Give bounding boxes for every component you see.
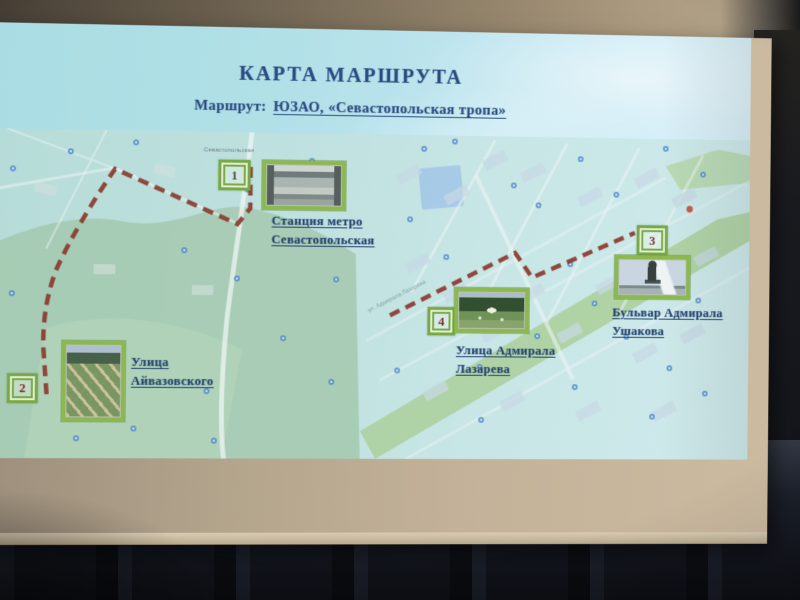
poi-dot-center	[651, 416, 653, 418]
presentation-slide: КАРТА МАРШРУТА Маршрут:ЮЗАО, «Севастопол…	[0, 22, 751, 460]
slide-subtitle: Маршрут:ЮЗАО, «Севастопольская тропа»	[0, 94, 704, 123]
park-patch-topright	[665, 149, 750, 191]
point-1-label: Станция метро Севастопольская	[271, 212, 375, 250]
poi-dot-center	[574, 386, 576, 388]
point-3-label-line2: Ушакова	[612, 322, 723, 341]
point-3-label-line1: Бульвар Адмирала	[612, 304, 723, 323]
point-2-label: Улица Айвазовского	[131, 353, 214, 391]
route-marker-4: 4	[427, 307, 455, 336]
point-3-label: Бульвар Адмирала Ушакова	[612, 304, 723, 341]
point-4-label-line2: Лазарева	[456, 360, 556, 379]
poi-dot-center	[704, 393, 706, 395]
poi-dot-center	[236, 277, 238, 279]
marker-1-number: 1	[231, 167, 238, 183]
poi-dot-center	[593, 302, 595, 304]
poi-dot-center	[697, 299, 699, 301]
subtitle-label: Маршрут:	[194, 98, 266, 115]
poi-dot-center	[536, 335, 538, 337]
subtitle-route-name: ЮЗАО, «Севастопольская тропа»	[273, 99, 506, 119]
marker-2-number: 2	[19, 380, 26, 396]
photo-frame-1	[262, 160, 346, 210]
marker-3-number: 3	[649, 233, 655, 249]
metro-icon	[686, 206, 692, 213]
map-street-label-sevastopolskaya: Севастопольская	[204, 147, 254, 154]
poi-dot-center	[330, 381, 332, 383]
point-4-label-line1: Улица Адмирала	[456, 341, 556, 360]
pond-block	[418, 165, 464, 210]
point-4-label: Улица Адмирала Лазарева	[456, 341, 556, 378]
auditorium-photo: КАРТА МАРШРУТА Маршрут:ЮЗАО, «Севастопол…	[0, 0, 800, 600]
poi-dot-center	[396, 369, 398, 371]
poi-dot-center	[75, 437, 77, 439]
marker-4-number: 4	[438, 313, 444, 329]
point-1-label-line1: Станция метро	[272, 212, 375, 232]
poi-dot-center	[668, 367, 670, 369]
point-1-label-line2: Севастопольская	[271, 230, 374, 250]
poi-dot-center	[213, 440, 215, 442]
screen-bottom-rail	[0, 532, 767, 545]
ayvazovsky-park-photo	[66, 346, 120, 417]
slide-title: КАРТА МАРШРУТА	[0, 56, 704, 94]
poi-dot-center	[11, 292, 13, 294]
route-marker-3: 3	[637, 225, 668, 255]
point-2-label-line1: Улица	[131, 353, 214, 372]
photo-frame-3	[614, 255, 690, 299]
lazareva-park-photo	[459, 292, 524, 328]
poi-dot-center	[282, 337, 284, 339]
route-map: Севастопольская ул. Адмирала Лазарева 1 …	[0, 128, 750, 460]
ushakov-monument-photo	[619, 260, 685, 295]
photo-frame-4	[454, 288, 529, 334]
poi-dot-center	[132, 427, 134, 429]
route-marker-1: 1	[218, 160, 251, 191]
metro-station-photo	[267, 165, 341, 205]
route-marker-2: 2	[7, 373, 38, 403]
photo-frame-2	[61, 341, 125, 422]
point-2-label-line2: Айвазовского	[131, 372, 214, 391]
poi-dot-center	[480, 419, 482, 421]
poi-dot-center	[335, 278, 337, 280]
projection-screen: КАРТА МАРШРУТА Маршрут:ЮЗАО, «Севастопол…	[0, 22, 772, 545]
